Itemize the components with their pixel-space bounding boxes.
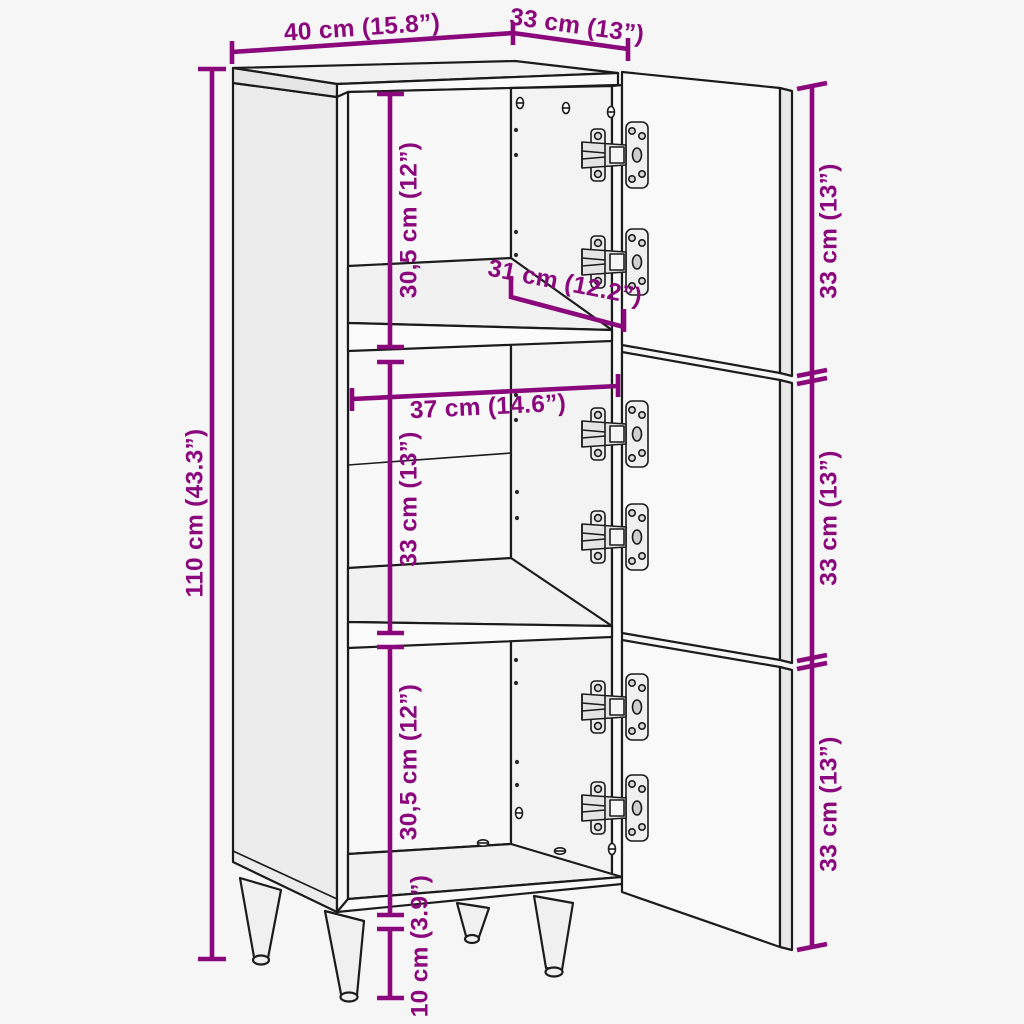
dimension-label-compartment-bottom: 30,5 cm (12”) bbox=[396, 684, 423, 840]
dimension-leg-height-lines bbox=[377, 929, 404, 998]
back-panel bbox=[348, 88, 511, 854]
dimension-label-compartment-top: 30,5 cm (12”) bbox=[396, 142, 423, 298]
dimension-label-compartment-middle: 33 cm (13”) bbox=[396, 431, 423, 566]
leg-front-left bbox=[325, 911, 364, 995]
leg-back-left bbox=[240, 878, 281, 958]
leg-back-right bbox=[457, 903, 489, 937]
leg-foot bbox=[253, 956, 269, 965]
right-wall-front-edge bbox=[612, 85, 622, 881]
door-top-edge bbox=[780, 88, 792, 376]
left-side-panel bbox=[233, 83, 337, 912]
cabinet-dimension-diagram: 40 cm (15.8”) 33 cm (13”) 110 cm (43.3”)… bbox=[0, 0, 1024, 1024]
leg-foot bbox=[546, 968, 563, 977]
door-top-face bbox=[622, 72, 780, 373]
dimension-label-height: 110 cm (43.3”) bbox=[182, 428, 209, 597]
dimension-diagram-canvas: 40 cm (15.8”) 33 cm (13”) 110 cm (43.3”)… bbox=[0, 0, 1024, 1024]
dimension-label-leg-height: 10 cm (3.9”) bbox=[407, 875, 434, 1018]
leg-foot bbox=[341, 993, 358, 1002]
dimension-label-door-top: 33 cm (13”) bbox=[816, 163, 843, 298]
leg-foot bbox=[465, 935, 479, 943]
door-bottom-edge bbox=[780, 667, 792, 950]
dimension-label-door-middle: 33 cm (13”) bbox=[816, 450, 843, 585]
right-wall-inner-face bbox=[511, 86, 612, 880]
dimension-label-door-bottom: 33 cm (13”) bbox=[816, 736, 843, 871]
cabinet-carcass bbox=[233, 61, 622, 912]
door-middle-edge bbox=[780, 380, 792, 663]
left-front-stile bbox=[337, 92, 348, 912]
leg-front-right bbox=[534, 896, 573, 970]
